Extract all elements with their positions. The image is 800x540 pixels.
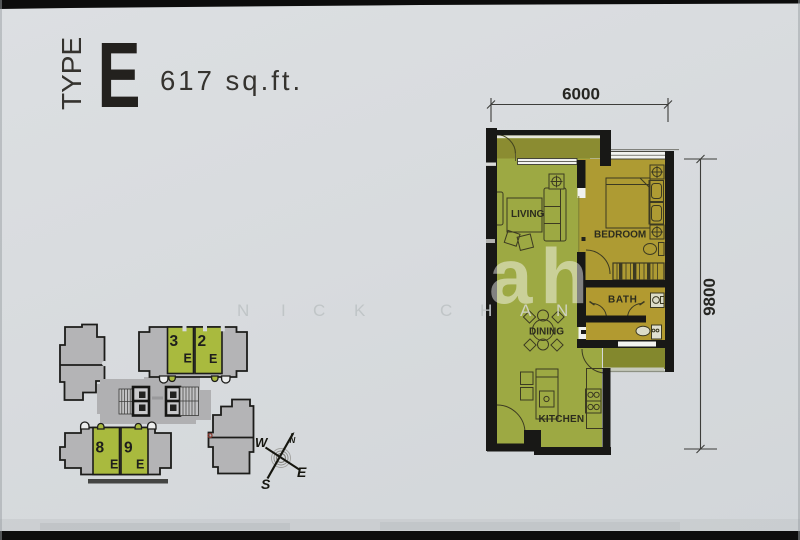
svg-text:DINING: DINING: [529, 327, 564, 338]
svg-text:KITCHEN: KITCHEN: [539, 414, 585, 425]
svg-text:E: E: [184, 352, 192, 366]
svg-text:K: K: [354, 301, 366, 320]
svg-text:H: H: [480, 301, 492, 320]
svg-text:BEDROOM: BEDROOM: [594, 230, 646, 241]
svg-text:N: N: [556, 301, 568, 320]
svg-text:E: E: [136, 458, 144, 472]
svg-text:W: W: [255, 435, 269, 450]
svg-text:8: 8: [96, 440, 105, 457]
svg-text:A: A: [520, 301, 532, 320]
svg-text:N: N: [290, 436, 296, 445]
svg-text:N: N: [237, 301, 249, 320]
svg-text:617 sq.ft.: 617 sq.ft.: [160, 65, 303, 96]
svg-text:BATH: BATH: [608, 295, 637, 306]
svg-text:E: E: [209, 352, 217, 366]
svg-text:9: 9: [124, 440, 133, 457]
svg-text:TYPE: TYPE: [56, 37, 87, 110]
svg-text:E: E: [98, 23, 141, 127]
svg-text:ah: ah: [489, 232, 596, 320]
svg-text:E: E: [110, 458, 118, 472]
svg-text:3: 3: [170, 333, 179, 350]
svg-text:LIVING: LIVING: [511, 209, 545, 220]
svg-text:C: C: [313, 301, 325, 320]
svg-text:I: I: [281, 301, 286, 320]
svg-text:C: C: [440, 301, 452, 320]
svg-text:2: 2: [198, 333, 207, 350]
svg-text:S: S: [261, 476, 271, 492]
svg-text:9800: 9800: [700, 278, 719, 316]
svg-text:E: E: [297, 464, 307, 480]
svg-text:6000: 6000: [562, 85, 600, 104]
